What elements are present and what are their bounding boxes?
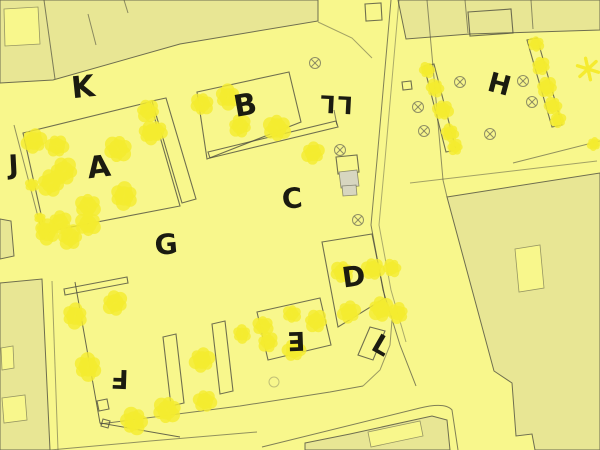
tree-icon (349, 304, 361, 316)
tree-icon (399, 307, 408, 316)
tree-icon (55, 136, 66, 147)
tree-icon (266, 332, 277, 343)
tree-icon (539, 57, 549, 67)
tree-icon (391, 260, 399, 268)
tree-icon (204, 391, 215, 402)
tree-icon (263, 318, 273, 328)
tree-icon (59, 212, 71, 224)
tree-icon (49, 170, 64, 185)
tree-icon (536, 38, 544, 46)
tree-icon (40, 214, 46, 220)
tree-icon (434, 80, 442, 88)
tree-icon (125, 187, 137, 199)
tree-icon (133, 409, 145, 421)
north-row-courtyard (4, 7, 40, 46)
tree-icon (372, 259, 383, 270)
tree-icon (312, 144, 324, 156)
zone-label-D: D (340, 259, 368, 295)
tree-icon (146, 100, 158, 112)
tree-icon (88, 196, 100, 208)
site-plan-screenshot: KJABLLHCGDELF (0, 0, 600, 450)
tree-icon (89, 357, 101, 369)
tree-icon (292, 307, 301, 316)
tree-icon (545, 77, 556, 88)
tree-icon (426, 63, 433, 70)
tree-icon (314, 310, 326, 322)
tree-icon (76, 308, 87, 319)
tree-icon (61, 158, 76, 173)
tree-icon (552, 98, 560, 106)
zone-label-C: C (280, 181, 303, 216)
zone-label-F: F (110, 363, 129, 394)
tree-icon (277, 117, 290, 130)
tree-icon (156, 123, 166, 133)
southwest-courtyard-2 (2, 395, 27, 423)
tree-icon (32, 180, 39, 187)
zone-label-LL: LL (318, 89, 354, 119)
tree-icon (453, 139, 462, 148)
tree-icon (88, 214, 100, 226)
site-plan-map: KJABLLHCGDELF (0, 0, 600, 450)
star-tree-icon (585, 66, 592, 73)
tree-icon (558, 114, 567, 123)
tree-icon (113, 292, 127, 306)
tree-icon (167, 401, 180, 414)
tree-icon (442, 101, 452, 111)
tree-icon (450, 126, 458, 134)
tree-icon (118, 140, 131, 153)
tree-icon (202, 351, 216, 365)
southwest-courtyard-1 (1, 346, 14, 370)
zone-label-G: G (153, 227, 179, 262)
zone-label-E: E (287, 325, 306, 356)
tree-icon (67, 224, 81, 238)
tree-icon (44, 223, 50, 229)
east-complex-courtyard (515, 245, 544, 292)
tree-icon (202, 97, 213, 108)
tree-icon (242, 327, 250, 335)
structure-C-grey-2 (342, 185, 357, 196)
